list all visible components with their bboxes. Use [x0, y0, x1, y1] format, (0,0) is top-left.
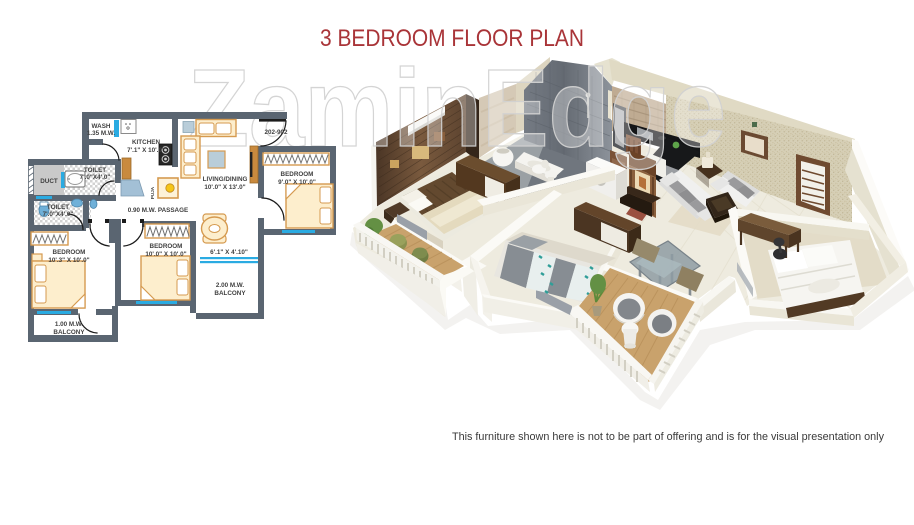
- svg-text:7'.0"X4'.0": 7'.0"X4'.0": [80, 174, 111, 181]
- svg-text:LIVING/DINING: LIVING/DINING: [203, 176, 248, 183]
- svg-text:KITCHEN: KITCHEN: [132, 139, 160, 146]
- svg-text:7'.1" X 10'.0": 7'.1" X 10'.0": [127, 147, 165, 154]
- svg-text:This furniture shown here is n: This furniture shown here is not to be p…: [452, 431, 884, 443]
- svg-text:10'.0" X 13'.0": 10'.0" X 13'.0": [204, 184, 245, 191]
- svg-text:0.90 M.W. PASSAGE: 0.90 M.W. PASSAGE: [128, 207, 188, 214]
- svg-text:9'.0" X 10'.0": 9'.0" X 10'.0": [278, 179, 316, 186]
- svg-text:10'.3" X 10'.0": 10'.3" X 10'.0": [48, 257, 89, 264]
- svg-text:TOILET: TOILET: [47, 204, 69, 211]
- svg-text:6'.1" X 4'.10": 6'.1" X 4'.10": [210, 249, 248, 256]
- svg-text:BEDROOM: BEDROOM: [281, 171, 314, 178]
- svg-text:BALCONY: BALCONY: [214, 290, 246, 297]
- svg-text:BEDROOM: BEDROOM: [53, 249, 86, 256]
- svg-text:WASH: WASH: [92, 123, 111, 130]
- svg-text:7'.0"X4'.0": 7'.0"X4'.0": [43, 211, 74, 218]
- svg-text:1.35 M.W.: 1.35 M.W.: [87, 130, 116, 137]
- svg-text:2.00 M.W.: 2.00 M.W.: [216, 282, 245, 289]
- svg-text:202-902: 202-902: [264, 129, 288, 136]
- svg-text:DUCT: DUCT: [40, 178, 58, 185]
- svg-text:TOILET: TOILET: [84, 167, 106, 174]
- svg-text:10'.0" X 10'.0": 10'.0" X 10'.0": [145, 251, 186, 258]
- svg-text:1.00 M.W.: 1.00 M.W.: [55, 321, 84, 328]
- svg-text:BEDROOM: BEDROOM: [150, 243, 183, 250]
- svg-text:BALCONY: BALCONY: [53, 329, 85, 336]
- svg-text:PUJA: PUJA: [150, 186, 155, 199]
- svg-text:3 BEDROOM FLOOR PLAN: 3 BEDROOM FLOOR PLAN: [320, 25, 584, 52]
